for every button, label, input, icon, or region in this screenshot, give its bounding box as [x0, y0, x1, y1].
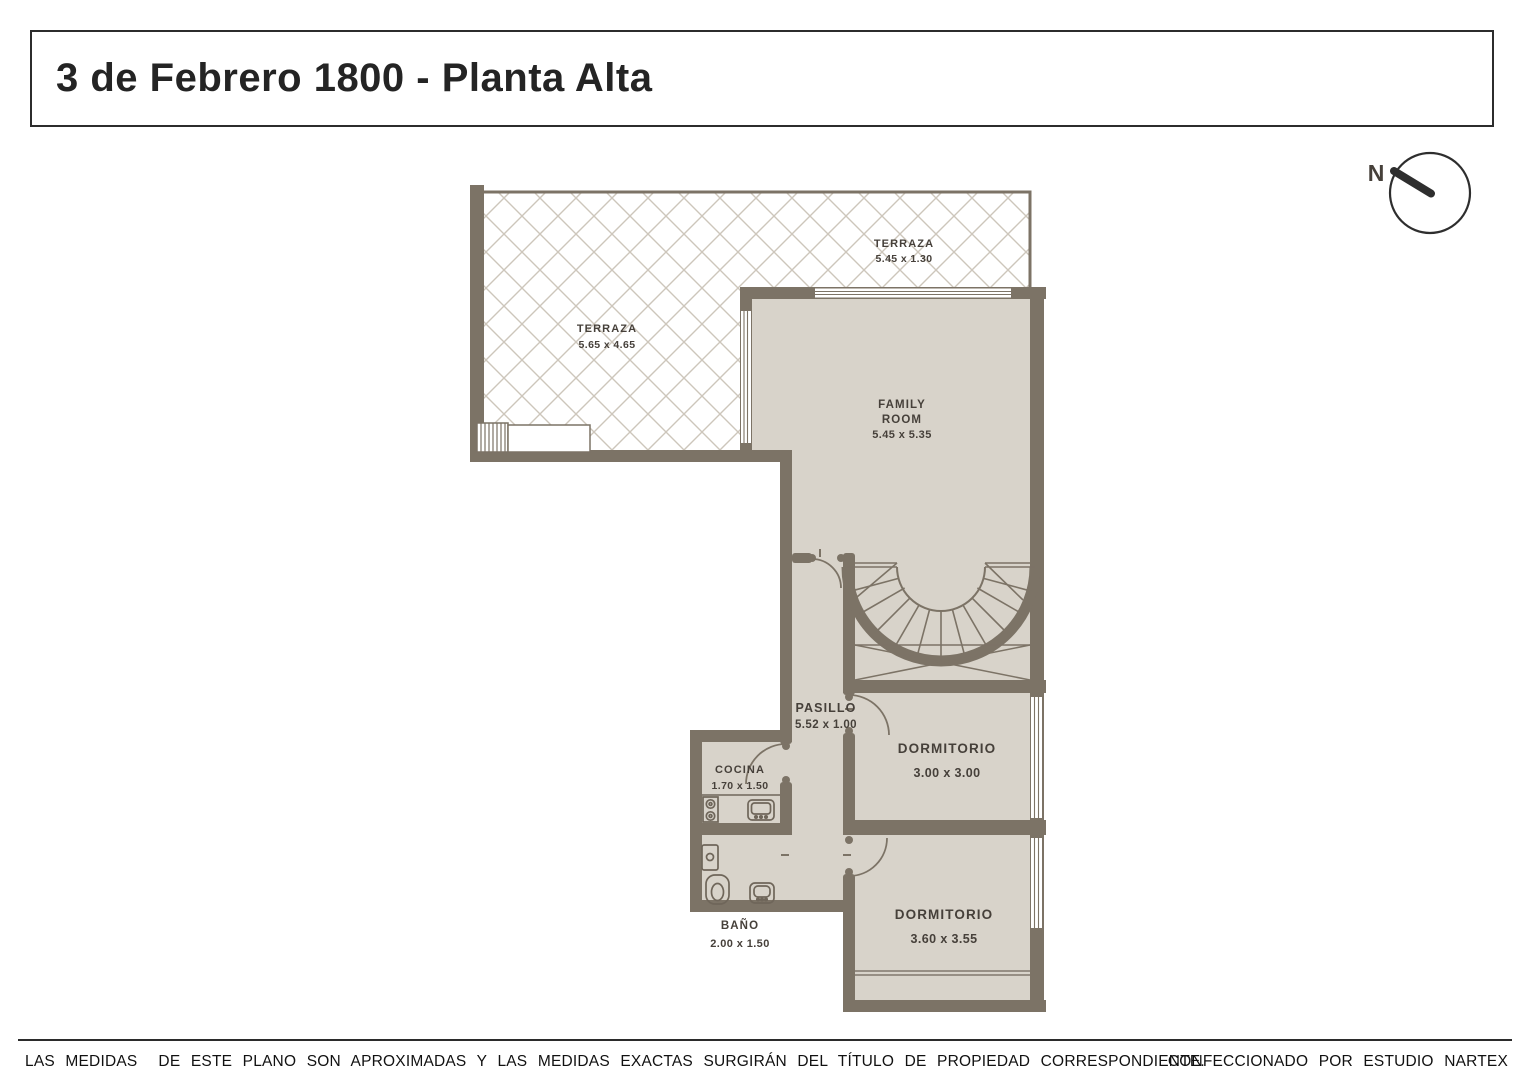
terraza-stairs	[477, 423, 590, 452]
floor-plan: TERRAZA 5.45 x 1.30 TERRAZA 5.65 x 4.65 …	[0, 0, 1528, 1080]
dormitorio-2-window	[1031, 838, 1042, 928]
north-needle	[1394, 171, 1431, 194]
svg-text:5.65 x 4.65: 5.65 x 4.65	[579, 339, 636, 351]
svg-text:2.00 x 1.50: 2.00 x 1.50	[710, 938, 769, 950]
dormitorio-1-window	[1031, 697, 1042, 818]
svg-text:COCINA: COCINA	[715, 764, 765, 776]
svg-text:FAMILY: FAMILY	[878, 399, 926, 411]
north-label: N	[1368, 160, 1385, 186]
svg-text:DORMITORIO: DORMITORIO	[895, 907, 994, 922]
footer-disclaimer: LAS MEDIDAS DE ESTE PLANO SON APROXIMADA…	[25, 1053, 1205, 1071]
footer-credit: CONFECCIONADO POR ESTUDIO NARTEX	[1168, 1053, 1508, 1071]
svg-text:PASILLO: PASILLO	[796, 701, 857, 715]
svg-text:3.00 x 3.00: 3.00 x 3.00	[914, 766, 981, 780]
label-bano: BAÑO 2.00 x 1.50	[710, 919, 769, 950]
svg-text:1.70 x 1.50: 1.70 x 1.50	[712, 780, 769, 792]
north-compass: N	[1368, 153, 1470, 233]
family-room-top-window	[815, 289, 1011, 298]
svg-text:5.45 x 1.30: 5.45 x 1.30	[876, 253, 933, 265]
svg-text:5.45 x 5.35: 5.45 x 5.35	[872, 429, 931, 441]
svg-text:3.60 x 3.55: 3.60 x 3.55	[911, 932, 978, 946]
family-room-left-window	[741, 311, 751, 443]
footer: LAS MEDIDAS DE ESTE PLANO SON APROXIMADA…	[0, 1050, 1528, 1080]
svg-text:TERRAZA: TERRAZA	[874, 238, 934, 250]
floor-plan-svg: TERRAZA 5.45 x 1.30 TERRAZA 5.65 x 4.65 …	[0, 0, 1528, 1080]
svg-text:DORMITORIO: DORMITORIO	[898, 741, 997, 756]
svg-text:ROOM: ROOM	[882, 414, 922, 426]
svg-text:5.52 x 1.00: 5.52 x 1.00	[795, 719, 857, 731]
footer-divider	[18, 1039, 1512, 1041]
svg-text:TERRAZA: TERRAZA	[577, 323, 637, 335]
svg-text:BAÑO: BAÑO	[721, 919, 759, 932]
